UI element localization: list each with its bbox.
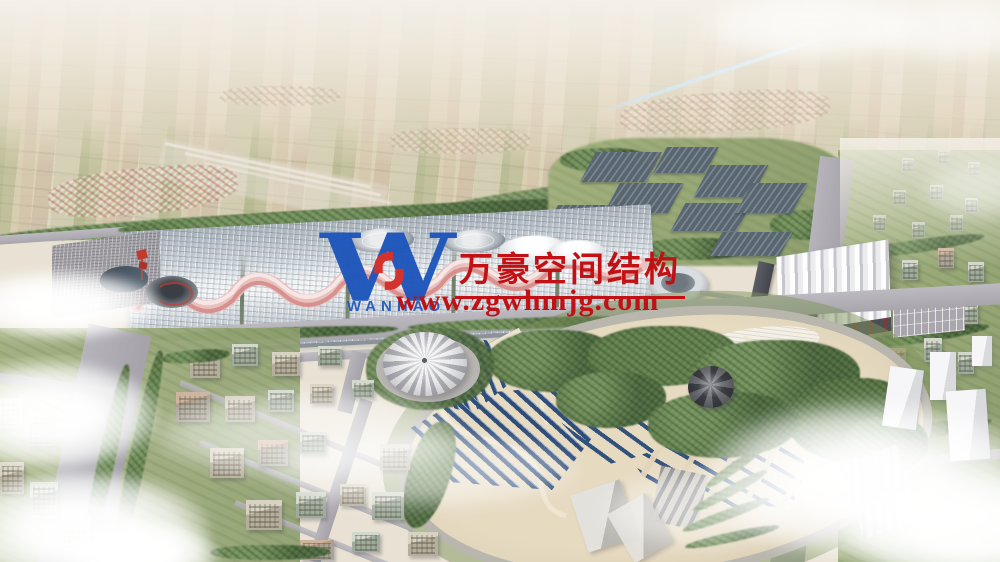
city-building: [318, 346, 342, 366]
cloud: [260, 430, 580, 510]
watermark-website-url: www.zgwhmjg.com: [396, 284, 659, 318]
city-building: [232, 344, 258, 366]
cloud: [600, 470, 800, 550]
cbd-tower: [972, 336, 992, 366]
city-building: [246, 500, 282, 530]
city-building: [272, 352, 300, 376]
aerial-rendering-exhibition-complex: W WANHAO 万豪空间结构 www.zgwhmjg.com: [0, 0, 1000, 562]
city-building: [352, 532, 380, 552]
city-building: [408, 532, 438, 556]
circus-tent-dome: [383, 332, 467, 396]
